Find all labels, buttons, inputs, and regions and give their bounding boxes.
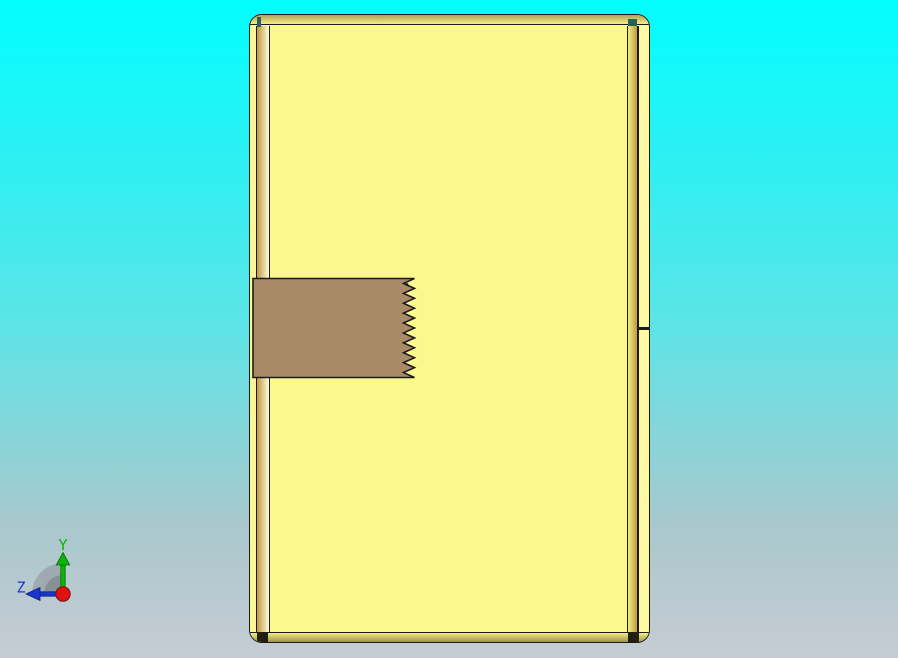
- serrated-insert-outline[interactable]: [253, 279, 415, 378]
- corner-notch-bottom-right: [628, 632, 640, 642]
- right-edge-split-line-tick: [639, 327, 649, 330]
- corner-notch-top-right: [628, 19, 637, 26]
- model-serrated-insert[interactable]: [249, 277, 419, 380]
- z-axis-label: Z: [16, 579, 25, 597]
- corner-notch-bottom-left: [257, 632, 268, 642]
- y-axis-label: Y: [58, 536, 67, 554]
- insert-vertex-dot: [406, 283, 409, 286]
- panel-top-fillet-face[interactable]: [250, 15, 649, 25]
- x-axis-origin-dot[interactable]: [56, 587, 70, 601]
- corner-notch-top-left: [257, 17, 261, 27]
- panel-right-fillet-strip[interactable]: [628, 26, 637, 632]
- orientation-triad[interactable]: Y Z: [8, 528, 80, 606]
- panel-bottom-fillet-face[interactable]: [250, 632, 649, 642]
- cad-viewport[interactable]: Y Z: [0, 0, 898, 658]
